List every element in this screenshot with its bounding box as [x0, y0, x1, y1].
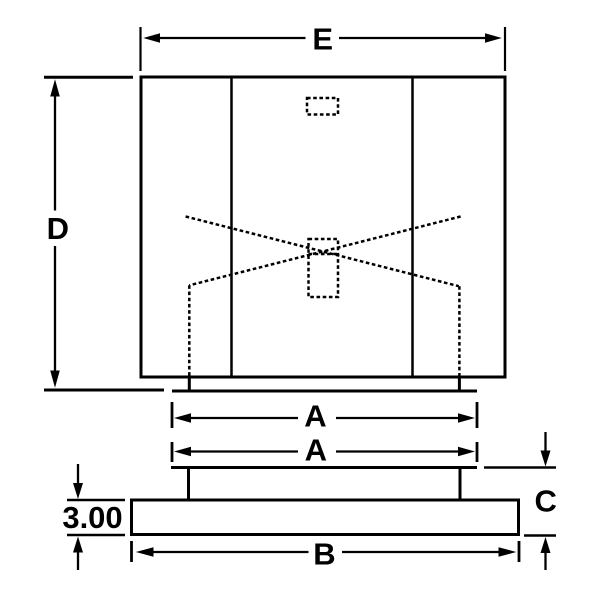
svg-text:B: B [313, 537, 335, 572]
svg-text:E: E [312, 22, 333, 57]
svg-text:A: A [305, 432, 327, 467]
svg-text:C: C [535, 484, 557, 519]
svg-text:D: D [47, 211, 69, 246]
svg-text:A: A [304, 398, 326, 433]
svg-text:3.00: 3.00 [62, 500, 122, 535]
